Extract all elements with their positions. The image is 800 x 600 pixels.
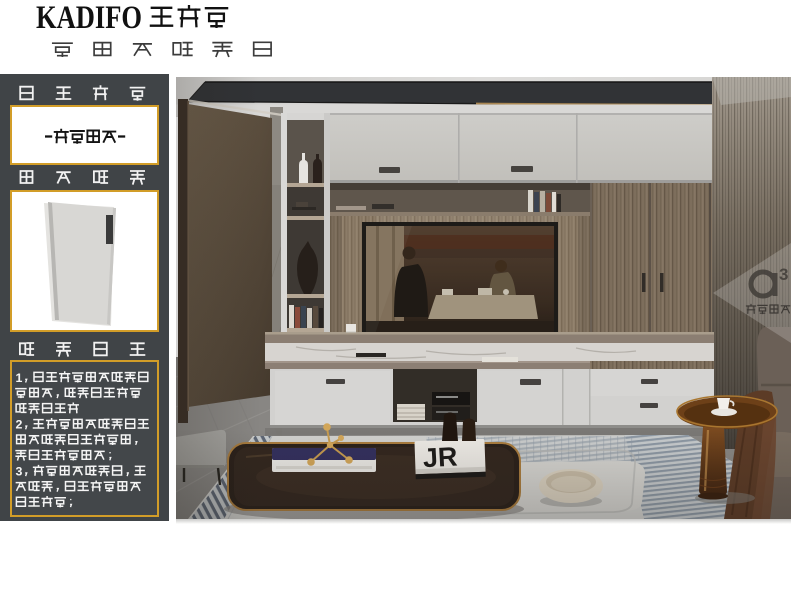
svg-text:2: 2 [16, 418, 23, 432]
svg-text:3: 3 [779, 265, 788, 284]
svg-text:1: 1 [16, 371, 23, 385]
svg-text:3: 3 [16, 464, 23, 478]
